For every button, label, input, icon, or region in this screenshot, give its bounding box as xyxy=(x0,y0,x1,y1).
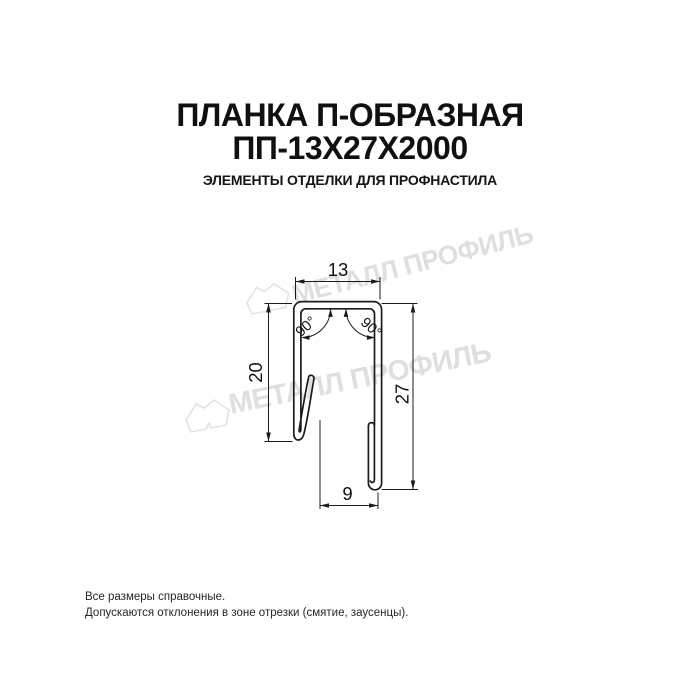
footer-note-line2: Допускаются отклонения в зоне отрезки (с… xyxy=(85,606,408,622)
angle-label-left: 90° xyxy=(293,314,320,341)
dimension-right-height: 27 xyxy=(382,304,418,490)
watermark-brand-text: МЕТАЛЛ ПРОФИЛЬ xyxy=(289,219,537,310)
arrow-left-icon xyxy=(320,503,329,508)
angle-annotation-left: 90° xyxy=(293,309,333,340)
arrow-up-icon xyxy=(328,309,333,317)
dimension-lines xyxy=(265,304,293,442)
dim-label-top-width: 13 xyxy=(328,259,349,280)
dim-label-right-height: 27 xyxy=(392,384,413,405)
watermark-brand-text: МЕТАЛЛ ПРОФИЛЬ xyxy=(226,336,494,421)
dimension-bottom-width: 9 xyxy=(320,420,378,509)
arrow-up-icon xyxy=(411,304,416,313)
arrow-down-icon xyxy=(266,433,271,442)
footer-note-line1: Все размеры справочные. xyxy=(85,590,408,606)
dimension-left-height: 20 xyxy=(245,304,293,442)
dim-label-left-height: 20 xyxy=(245,362,266,383)
watermark-top: МЕТАЛЛ ПРОФИЛЬ xyxy=(247,219,537,314)
product-drawing-page: ПЛАНКА П-ОБРАЗНАЯ ПП-13Х27Х2000 ЭЛЕМЕНТЫ… xyxy=(0,0,700,700)
angle-label-right: 90° xyxy=(357,315,384,342)
brand-logo-icon xyxy=(186,400,229,432)
arrow-down-icon xyxy=(411,481,416,490)
angle-annotation-right: 90° xyxy=(344,309,384,341)
dim-label-bottom-width: 9 xyxy=(342,483,352,504)
arrow-up-icon xyxy=(344,309,349,317)
arrow-right-icon xyxy=(369,503,378,508)
watermark-middle: МЕТАЛЛ ПРОФИЛЬ xyxy=(186,336,494,432)
footer-notes: Все размеры справочные. Допускаются откл… xyxy=(85,590,408,621)
